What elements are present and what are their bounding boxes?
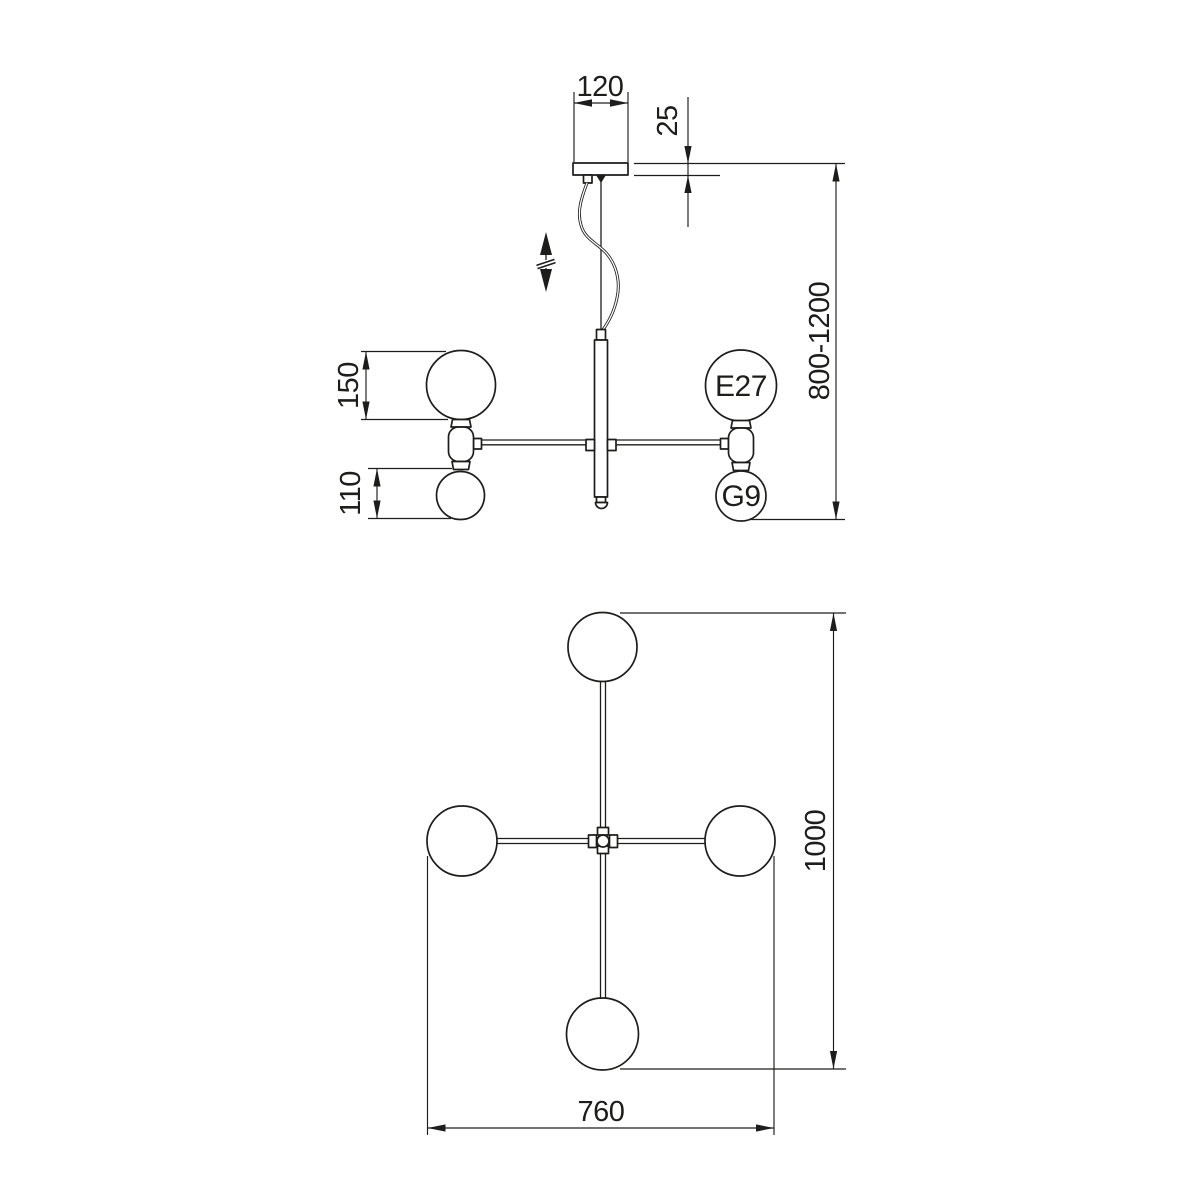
plan-globe-left bbox=[427, 806, 497, 876]
dim-text: 120 bbox=[577, 71, 624, 103]
arm-connector bbox=[586, 440, 595, 451]
dim-text: 1000 bbox=[800, 810, 832, 873]
center-hub bbox=[589, 828, 618, 854]
dimension-arrow bbox=[756, 1124, 774, 1131]
arm-connector bbox=[721, 439, 729, 450]
arrow-up-icon bbox=[540, 232, 552, 255]
dim-canopy-thickness: 25 bbox=[634, 97, 845, 227]
holder-neck-bottom bbox=[732, 463, 750, 471]
dim-hanging-height: 800-1200 bbox=[750, 164, 845, 520]
dim-text: 800-1200 bbox=[804, 282, 836, 401]
socket-label-g9: G9 bbox=[721, 480, 760, 513]
side-view: E27 G9 120 25 800-1200 bbox=[333, 71, 845, 521]
large-globe bbox=[427, 351, 496, 420]
holder-body bbox=[449, 427, 474, 462]
dimension-arrow bbox=[832, 164, 839, 182]
left-lamp-unit bbox=[427, 351, 496, 520]
socket-label-e27: E27 bbox=[715, 370, 767, 403]
dimension-arrow bbox=[373, 501, 380, 519]
holder-body bbox=[729, 428, 754, 463]
plan-globe-right bbox=[705, 806, 775, 876]
pendant-lamp-technical-drawing: E27 G9 120 25 800-1200 bbox=[0, 0, 1200, 1200]
dim-text: 110 bbox=[335, 471, 367, 516]
hub-circle bbox=[597, 835, 609, 847]
arm-connector bbox=[474, 439, 482, 450]
holder-neck-top bbox=[731, 421, 751, 429]
holder-neck-bottom bbox=[452, 462, 470, 470]
plan-globe-bottom bbox=[567, 998, 639, 1070]
dim-small-globe: 110 bbox=[335, 469, 452, 519]
dimension-arrow bbox=[830, 1051, 837, 1069]
plan-view: 1000 760 bbox=[427, 613, 846, 1136]
dim-overall-length: 1000 bbox=[620, 613, 846, 1069]
dim-canopy-width: 120 bbox=[574, 71, 628, 162]
arrow-down-icon bbox=[540, 269, 552, 292]
rod-end-cap bbox=[596, 503, 608, 509]
holder-neck-top bbox=[451, 420, 471, 428]
dim-text: 760 bbox=[578, 1096, 625, 1128]
central-rod bbox=[595, 340, 608, 497]
dimension-arrow bbox=[684, 176, 691, 194]
left-arm bbox=[474, 439, 595, 451]
dimension-arrow bbox=[832, 502, 839, 520]
small-globe bbox=[437, 472, 485, 520]
cord-grip bbox=[584, 175, 593, 183]
hub-connector bbox=[598, 828, 609, 836]
hub-connector bbox=[589, 835, 597, 848]
rod-top-connector bbox=[597, 330, 606, 341]
height-adjust-icon bbox=[537, 232, 555, 292]
dimension-arrow bbox=[830, 613, 837, 631]
drawing-canvas: E27 G9 120 25 800-1200 bbox=[0, 0, 1200, 1200]
right-arm bbox=[608, 439, 729, 451]
right-lamp-unit: E27 G9 bbox=[706, 350, 777, 521]
arm-connector bbox=[608, 440, 617, 451]
dimension-arrow bbox=[428, 1124, 446, 1131]
dim-large-globe: 150 bbox=[333, 352, 448, 420]
dimension-arrow bbox=[684, 146, 691, 164]
dim-text: 25 bbox=[652, 105, 684, 136]
ceiling-canopy bbox=[573, 163, 628, 175]
dimension-arrow bbox=[373, 469, 380, 487]
dim-text: 150 bbox=[333, 362, 365, 409]
power-cable bbox=[579, 183, 618, 331]
plan-globe-top bbox=[568, 613, 637, 682]
hub-connector bbox=[610, 835, 618, 848]
